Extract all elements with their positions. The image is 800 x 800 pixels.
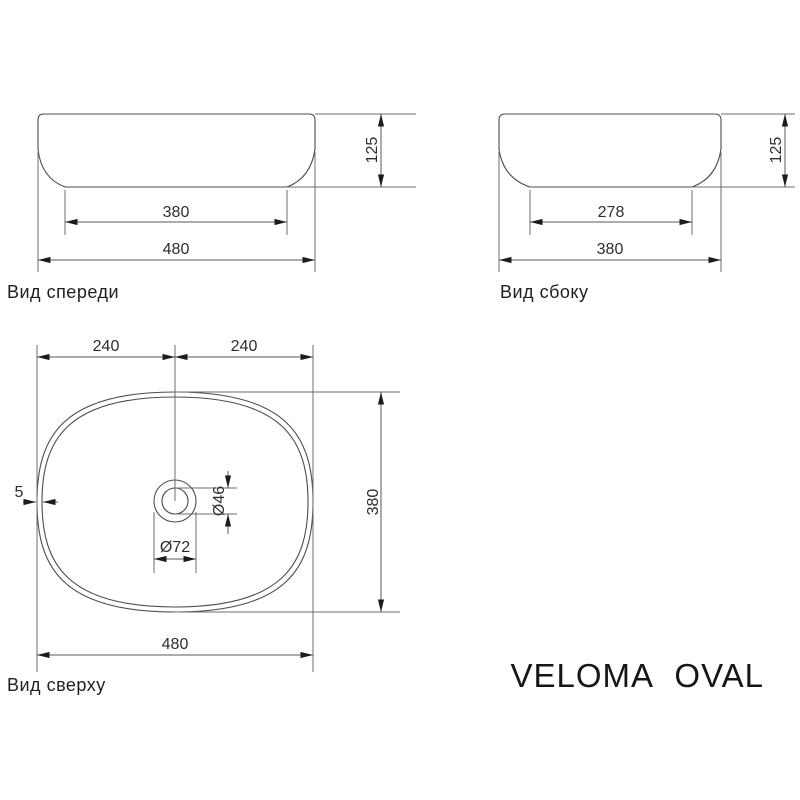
top-dim-wall: 5	[15, 484, 24, 501]
drain-outer-dim: Ø72	[160, 539, 190, 556]
top-dim-half-left: 240	[93, 338, 120, 355]
side-dim-height: 125	[768, 137, 785, 164]
top-view: 240 240 380 480 5 Ø46 Ø72 Вид сверху	[7, 338, 400, 695]
side-view-outline	[499, 114, 721, 187]
front-view: 380 480 125 Вид спереди	[7, 114, 416, 302]
front-dim-outer-width: 480	[163, 241, 190, 258]
top-dim-depth: 380	[365, 489, 382, 516]
drawing-svg: 380 480 125 Вид спереди 278 380 125 Вид …	[0, 0, 800, 800]
side-dim-outer-width: 380	[597, 241, 624, 258]
top-view-label: Вид сверху	[7, 675, 106, 695]
top-dim-half-right: 240	[231, 338, 258, 355]
technical-drawing-page: 380 480 125 Вид спереди 278 380 125 Вид …	[0, 0, 800, 800]
front-view-outline	[38, 114, 315, 187]
front-dim-inner-width: 380	[163, 204, 190, 221]
front-view-label: Вид спереди	[7, 282, 119, 302]
top-dim-width: 480	[162, 636, 189, 653]
side-view-label: Вид сбоку	[500, 282, 588, 302]
drain-inner-dim: Ø46	[211, 486, 228, 516]
side-view: 278 380 125 Вид сбоку	[499, 114, 795, 302]
front-dim-height: 125	[364, 137, 381, 164]
product-title: VELOMA OVAL	[511, 657, 764, 694]
side-dim-inner-width: 278	[598, 204, 625, 221]
